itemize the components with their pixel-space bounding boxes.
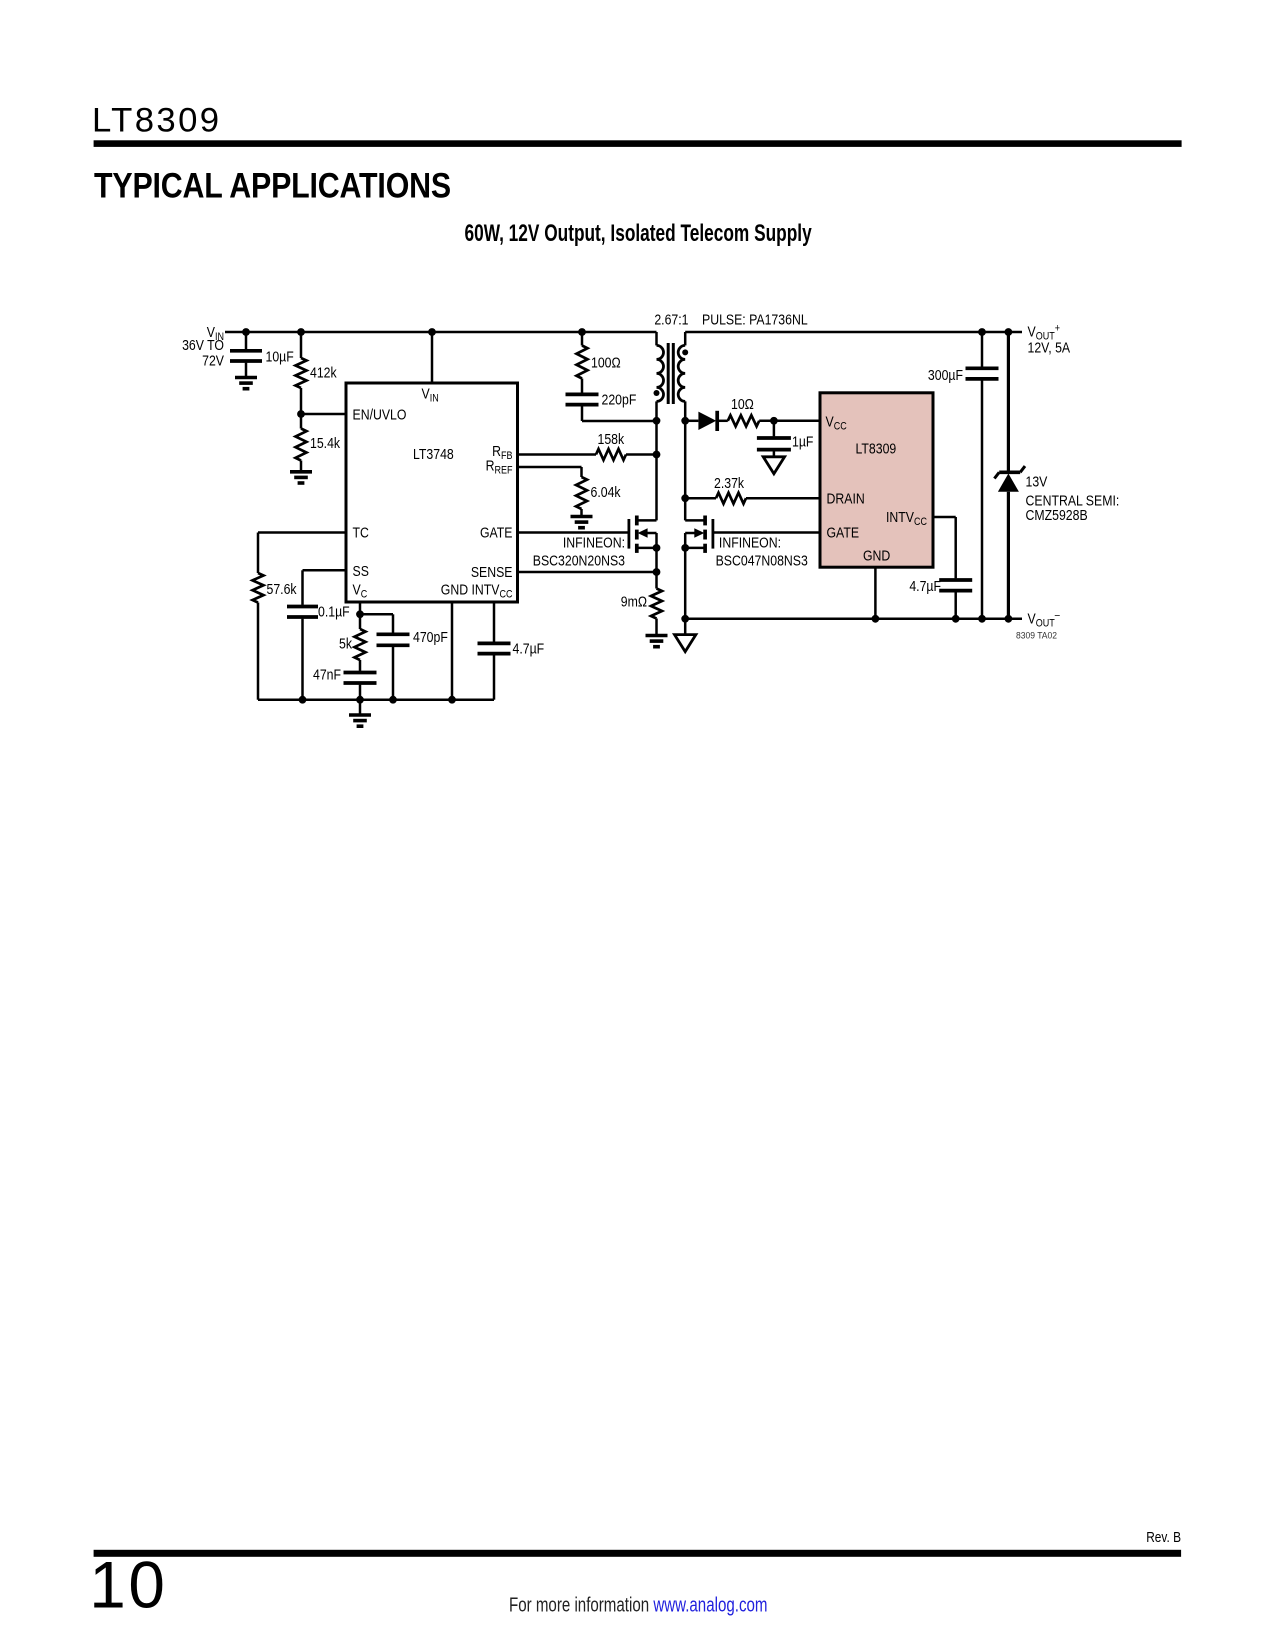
svg-text:47nF: 47nF [313,666,341,682]
svg-text:10: 10 [89,1549,167,1622]
svg-text:GND: GND [863,547,890,563]
svg-text:300µF: 300µF [928,367,963,383]
svg-text:412k: 412k [310,364,337,380]
svg-text:LT3748: LT3748 [413,446,454,462]
svg-text:36V TO: 36V TO [182,337,224,353]
svg-text:220pF: 220pF [602,391,637,407]
svg-text:BSC320N20NS3: BSC320N20NS3 [533,552,626,568]
svg-text:15.4k: 15.4k [310,435,340,451]
svg-text:EN/UVLO: EN/UVLO [353,406,407,422]
svg-text:8309 TA02: 8309 TA02 [1016,630,1057,641]
svg-text:2.67:1: 2.67:1 [654,311,688,327]
svg-text:INFINEON:: INFINEON: [563,534,625,550]
svg-text:BSC047N08NS3: BSC047N08NS3 [716,552,809,568]
svg-text:9mΩ: 9mΩ [621,593,647,609]
svg-text:SS: SS [353,563,369,579]
svg-text:5k: 5k [339,635,352,651]
svg-text:GATE: GATE [827,524,860,540]
svg-text:For more information www.analo: For more information www.analog.com [509,1594,767,1617]
svg-text:4.7µF: 4.7µF [513,640,545,656]
svg-text:PULSE: PA1736NL: PULSE: PA1736NL [702,311,808,327]
svg-text:57.6k: 57.6k [267,581,297,597]
svg-text:SENSE: SENSE [471,564,513,580]
svg-text:INFINEON:: INFINEON: [719,534,781,550]
svg-text:LT8309: LT8309 [856,440,897,456]
svg-text:13V: 13V [1026,473,1049,489]
svg-text:4.7µF: 4.7µF [909,578,941,594]
svg-text:TC: TC [353,524,369,540]
svg-text:1µF: 1µF [792,433,813,449]
svg-text:470pF: 470pF [413,629,448,645]
svg-text:CMZ5928B: CMZ5928B [1026,507,1088,523]
svg-text:Rev. B: Rev. B [1146,1529,1181,1545]
svg-text:12V, 5A: 12V, 5A [1028,339,1071,355]
svg-text:0.1µF: 0.1µF [318,603,350,619]
svg-text:158k: 158k [598,431,625,447]
svg-text:10µF: 10µF [266,348,294,364]
svg-text:TYPICAL APPLICATIONS: TYPICAL APPLICATIONS [94,165,451,205]
svg-text:60W, 12V Output, Isolated Tele: 60W, 12V Output, Isolated Telecom Supply [465,220,812,246]
svg-text:6.04k: 6.04k [591,484,621,500]
svg-text:72V: 72V [202,353,225,369]
svg-text:DRAIN: DRAIN [827,490,865,506]
svg-text:GATE: GATE [480,524,513,540]
svg-text:LT8309: LT8309 [92,102,221,140]
svg-text:100Ω: 100Ω [591,354,621,370]
svg-text:2.37k: 2.37k [714,475,744,491]
svg-text:10Ω: 10Ω [731,396,754,412]
